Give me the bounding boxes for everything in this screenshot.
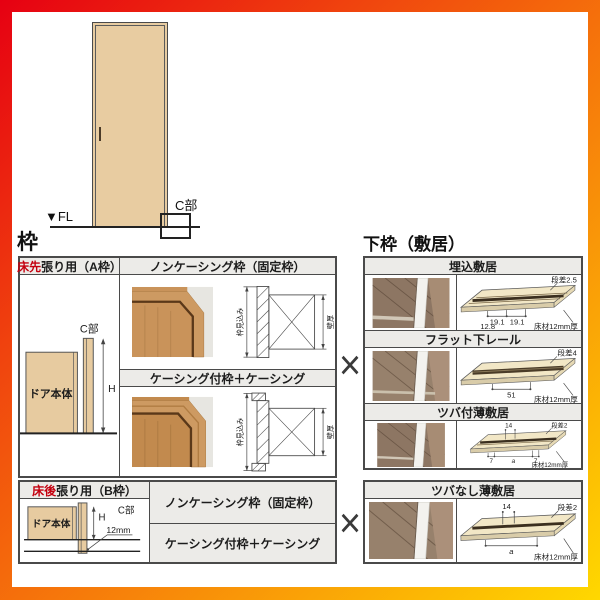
table-a-noncasing-header: ノンケーシング枠（固定枠） bbox=[120, 258, 335, 275]
umekomi-floor-note: 床材12mm厚 bbox=[534, 321, 578, 330]
sill-row1-diagram-cell: 段差2.5 19.1 19.1 12.8 床材12mm厚 bbox=[457, 275, 581, 331]
table-b-type-rest: 張り用（B枠） bbox=[56, 482, 137, 499]
b-door-body-label: ドア本体 bbox=[31, 518, 70, 530]
multiply-separator-top: × bbox=[335, 343, 364, 387]
door-panel bbox=[92, 22, 168, 228]
table-a-casing-header: ケーシング付枠＋ケーシング bbox=[120, 370, 335, 387]
sill-photo-1 bbox=[369, 278, 453, 328]
b-floor-offset-label: 12mm bbox=[106, 524, 130, 534]
sill-table-secondary: ツバなし薄敷居 14 段差2 bbox=[363, 480, 583, 564]
tsuba-step-label: 段差2 bbox=[551, 422, 568, 430]
sill-diagram-umekomi: 段差2.5 19.1 19.1 12.8 床材12mm厚 bbox=[459, 275, 579, 330]
umekomi-dim-center: 12.8 bbox=[480, 322, 495, 330]
c-part-label: C部 bbox=[175, 195, 197, 214]
nashi-dim-top: 14 bbox=[502, 502, 511, 511]
a-h-dim-label: H bbox=[108, 384, 116, 395]
jamb-depth-label: 枠見込み bbox=[236, 308, 245, 337]
nashi-floor-note: 床材12mm厚 bbox=[534, 551, 578, 560]
table-b-type-header: 床後張り用（B枠） bbox=[20, 482, 150, 499]
b-c-part-label: C部 bbox=[117, 504, 134, 516]
sill-photo-3 bbox=[371, 423, 451, 467]
gradient-border-frame: ▼FL C部 枠 下枠（敷居） 床先張り用（A枠） ノンケーシング枠（固定枠） … bbox=[0, 0, 600, 600]
umekomi-dim-right: 19.1 bbox=[510, 317, 525, 326]
a-c-part-label: C部 bbox=[80, 321, 99, 335]
multiply-separator-bottom: × bbox=[335, 501, 364, 545]
sill-diagram-tsuba-tsuki: 14 段差2 7 a 7 床材12mm厚 bbox=[460, 422, 578, 468]
flat-step-label: 段差4 bbox=[557, 348, 576, 358]
sill-photo-2 bbox=[369, 351, 453, 401]
sill-row3-header: ツバ付薄敷居 bbox=[365, 404, 581, 421]
noncasing-section-diagram: 枠見込み 壁厚 bbox=[235, 278, 335, 366]
sill-row1-photo-cell bbox=[365, 275, 457, 331]
table-a-casing-content: 枠見込み 壁厚 bbox=[120, 387, 335, 476]
sill-row4-diagram-cell: 14 段差2 a 床材12mm厚 bbox=[457, 499, 581, 562]
sill-diagram-flat-rail: 段差4 51 床材12mm厚 bbox=[459, 348, 579, 403]
frame-heading: 枠 bbox=[17, 226, 38, 256]
door-corner-photo-noncasing bbox=[132, 285, 213, 359]
nashi-step-label: 段差2 bbox=[558, 502, 577, 512]
sill-row4-photo-cell bbox=[365, 499, 457, 562]
sill-row3-photo-cell bbox=[365, 421, 457, 468]
content-canvas: ▼FL C部 枠 下枠（敷居） 床先張り用（A枠） ノンケーシング枠（固定枠） … bbox=[12, 12, 588, 587]
sill-row2-photo-cell bbox=[365, 348, 457, 404]
table-b-noncasing-option: ノンケーシング枠（固定枠） bbox=[150, 482, 335, 524]
table-a-type-red: 床先 bbox=[17, 258, 41, 275]
tsuba-dim-center: a bbox=[512, 458, 516, 465]
flat-floor-note: 床材12mm厚 bbox=[534, 394, 578, 403]
door-corner-photo-casing bbox=[132, 395, 213, 469]
wall-thickness-label: 壁厚 bbox=[326, 315, 335, 329]
frame-table-b: 床後張り用（B枠） ドア本体 H C部 12mm ノンケーシング枠（固定枠） ケ… bbox=[18, 480, 337, 564]
c-part-detail-box bbox=[160, 213, 191, 239]
door-handle bbox=[99, 127, 101, 141]
table-a-noncasing-content: 枠見込み 壁厚 bbox=[120, 275, 335, 370]
b-frame-diagram: ドア本体 H C部 12mm bbox=[22, 501, 148, 561]
umekomi-step-label: 段差2.5 bbox=[551, 275, 577, 285]
nashi-dim-center: a bbox=[509, 546, 513, 555]
sill-row4-header: ツバなし薄敷居 bbox=[365, 482, 581, 499]
flat-dim-center: 51 bbox=[507, 390, 515, 399]
tsuba-dim-left: 7 bbox=[489, 458, 493, 465]
sill-row2-diagram-cell: 段差4 51 床材12mm厚 bbox=[457, 348, 581, 404]
fl-marker-label: ▼FL bbox=[45, 209, 73, 224]
sill-row1-header: 埋込敷居 bbox=[365, 258, 581, 275]
casing-section-diagram: 枠見込み 壁厚 bbox=[235, 388, 335, 476]
table-b-type-red: 床後 bbox=[32, 482, 56, 499]
table-b-diagram-cell: ドア本体 H C部 12mm bbox=[20, 499, 150, 562]
sill-table-main: 埋込敷居 段差2.5 bbox=[363, 256, 583, 470]
door-panel-inner-frame bbox=[95, 25, 165, 227]
tsuba-dim-top: 14 bbox=[505, 422, 513, 429]
table-b-casing-option: ケーシング付枠＋ケーシング bbox=[150, 524, 335, 562]
table-a-diagram-cell: C部 ドア本体 H bbox=[20, 275, 120, 476]
a-door-body-label: ドア本体 bbox=[29, 387, 73, 401]
lower-frame-heading: 下枠（敷居） bbox=[363, 230, 465, 255]
frame-table-a: 床先張り用（A枠） ノンケーシング枠（固定枠） C部 ドア本体 H bbox=[18, 256, 337, 478]
a-frame-diagram: C部 ドア本体 H bbox=[20, 275, 119, 473]
wall-thickness-label-2: 壁厚 bbox=[326, 424, 335, 438]
sill-row3-diagram-cell: 14 段差2 7 a 7 床材12mm厚 bbox=[457, 421, 581, 468]
table-a-type-rest: 張り用（A枠） bbox=[41, 258, 122, 275]
jamb-depth-label-2: 枠見込み bbox=[236, 417, 245, 446]
sill-diagram-tsuba-nashi: 14 段差2 a 床材12mm厚 bbox=[459, 501, 579, 561]
table-a-type-header: 床先張り用（A枠） bbox=[20, 258, 120, 275]
sill-row2-header: フラット下レール bbox=[365, 331, 581, 348]
b-h-dim-label: H bbox=[98, 512, 105, 523]
sill-photo-4 bbox=[369, 502, 453, 559]
